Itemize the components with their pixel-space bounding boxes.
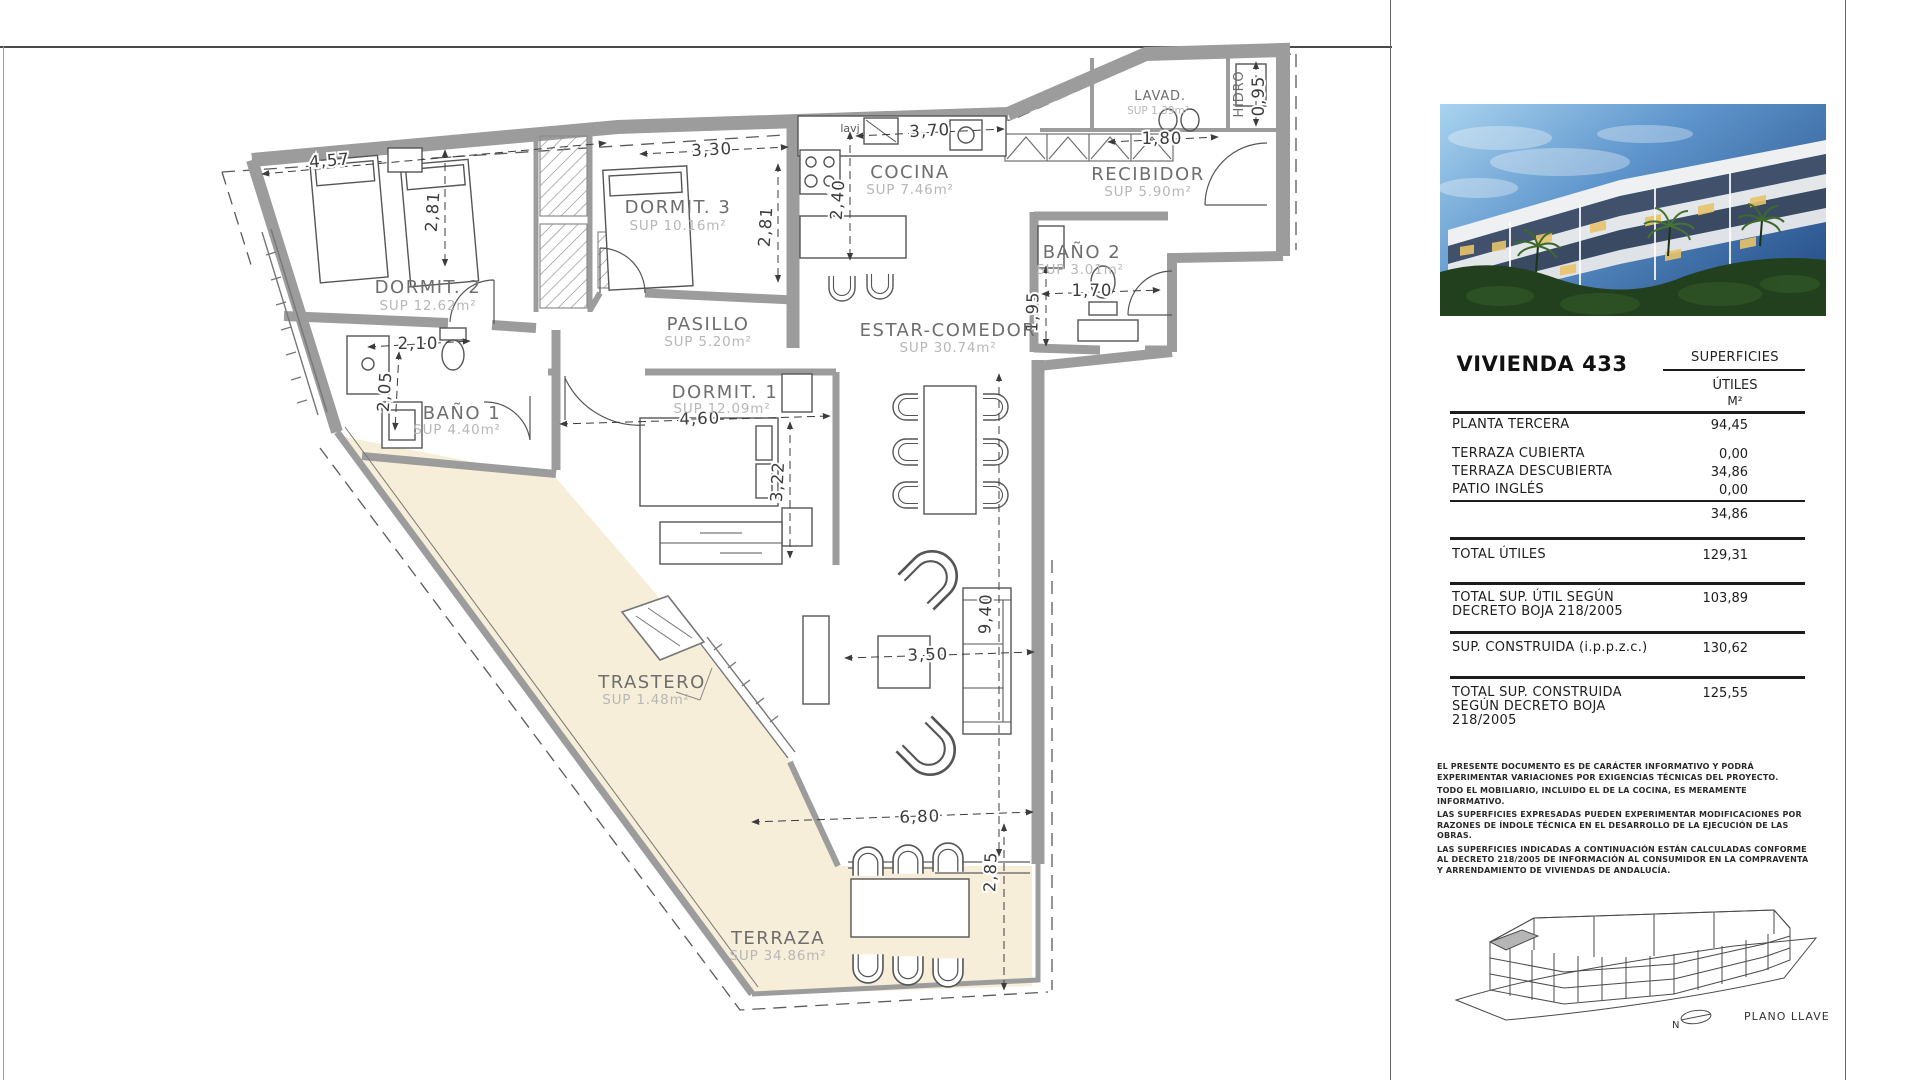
dining-chair xyxy=(893,439,918,465)
room-sup: SUP 34.86m² xyxy=(730,948,827,964)
table-rule xyxy=(1450,411,1805,414)
table-row-label: TERRAZA CUBIERTA xyxy=(1452,447,1657,461)
toilet-bath1 xyxy=(442,340,464,370)
nightstand-dormit1-b xyxy=(782,508,812,546)
room-sup: SUP 5.90m² xyxy=(1104,184,1192,200)
dim-label: 3,50 xyxy=(907,644,948,664)
table-row-value: 130,62 xyxy=(1660,641,1748,656)
floor-plan: 4,57 2,81 3,30 2,81 2,40 3,70 1,80 0,95 … xyxy=(0,0,1390,1080)
table-rule xyxy=(1450,676,1805,679)
table-row-value: 34,86 xyxy=(1660,465,1748,480)
room-sup: SUP 1.48m² xyxy=(602,692,690,708)
dim-label: 2,81 xyxy=(755,206,777,248)
dim-label: 3,30 xyxy=(691,139,733,160)
table-row-value: 0,00 xyxy=(1660,447,1748,462)
table-row-value: 125,55 xyxy=(1660,686,1748,701)
dining-table xyxy=(924,386,976,514)
room-sup: SUP 7.46m² xyxy=(866,182,954,198)
room-sup: SUP 3.01m² xyxy=(1036,262,1124,278)
dim-label: 1,70 xyxy=(1072,281,1113,300)
kitchen-island xyxy=(800,216,906,258)
dim-label: 2,40 xyxy=(827,179,849,221)
room-name: HIDRO xyxy=(1232,71,1247,118)
room-sup: SUP 1.39m² xyxy=(1127,105,1189,117)
room-sup: SUP 12.09m² xyxy=(674,401,771,417)
table-rule xyxy=(1450,537,1805,540)
kitchen-sink xyxy=(950,120,982,150)
dim-label: 2,05 xyxy=(374,371,396,413)
dining-chair xyxy=(983,482,1008,508)
table-row-value: 129,31 xyxy=(1660,548,1748,563)
terrace-chair xyxy=(853,954,883,983)
terrace-chair xyxy=(933,958,963,987)
disclaimer-line: LAS SUPERFICIES EXPRESADAS PUEDEN EXPERI… xyxy=(1437,810,1815,842)
room-name: PASILLO xyxy=(667,314,750,335)
armchair xyxy=(898,541,967,610)
table-row-label: TOTAL SUP. ÚTIL SEGÚN DECRETO BOJA 218/2… xyxy=(1452,591,1657,619)
dim-label: 6,80 xyxy=(899,806,940,826)
dining-chair xyxy=(893,394,918,420)
tv-bench xyxy=(803,616,829,704)
disclaimer-line: TODO EL MOBILIARIO, INCLUIDO EL DE LA CO… xyxy=(1437,786,1815,807)
room-name: BAÑO 2 xyxy=(1043,241,1121,263)
key-plan: N PLANO LLAVE xyxy=(1444,880,1834,1050)
dim-label: 2,85 xyxy=(980,851,1000,892)
dim-label: 0,95 xyxy=(1249,76,1268,117)
toilet-tank-bath2 xyxy=(1089,302,1117,315)
table-row-label: PATIO INGLÉS xyxy=(1452,483,1657,497)
room-name: COCINA xyxy=(870,162,949,183)
room-name: BAÑO 1 xyxy=(423,402,501,424)
keyplan-building xyxy=(1490,910,1790,1004)
stool xyxy=(829,276,855,301)
room-name: LAVAD. xyxy=(1134,89,1186,104)
room-sup: SUP 30.74m² xyxy=(900,340,997,356)
disclaimer-line: LAS SUPERFICIES INDICADAS A CONTINUACIÓN… xyxy=(1437,845,1815,877)
dim-label: 4,57 xyxy=(308,149,350,171)
header-underline xyxy=(1663,369,1805,371)
room-sup: SUP 5.20m² xyxy=(664,334,752,350)
table-unit: M² xyxy=(1660,394,1810,408)
toilet-tank-bath1 xyxy=(440,328,466,340)
table-header: SUPERFICIES xyxy=(1660,350,1810,365)
armchair xyxy=(896,716,965,785)
room-name: ESTAR-COMEDOR xyxy=(860,320,1037,341)
dim-label: 2,10 xyxy=(398,334,439,353)
table-row-value: 34,86 xyxy=(1660,507,1748,522)
dim-label: 2,81 xyxy=(422,191,444,233)
terrace-table xyxy=(851,879,969,937)
terrace-chair xyxy=(893,845,923,874)
disclaimer-line: EL PRESENTE DOCUMENTO ES DE CARÁCTER INF… xyxy=(1437,762,1815,783)
dining-chair xyxy=(893,482,918,508)
table-rule xyxy=(1450,631,1805,634)
dim-label: 3,70 xyxy=(909,120,951,141)
room-name: TERRAZA xyxy=(730,928,825,949)
nightstand-dormit2 xyxy=(388,148,422,172)
table-row-label: TOTAL ÚTILES xyxy=(1452,548,1657,562)
disclaimer: EL PRESENTE DOCUMENTO ES DE CARÁCTER INF… xyxy=(1437,762,1815,879)
lavj-label: lavj xyxy=(840,122,859,135)
nightstand-dormit1-a xyxy=(782,374,812,412)
shower-bath2 xyxy=(1078,320,1138,341)
room-name: DORMIT. 1 xyxy=(672,382,779,403)
table-row-label: PLANTA TERCERA xyxy=(1452,418,1657,432)
table-subheader: ÚTILES xyxy=(1660,378,1810,393)
room-name: RECIBIDOR xyxy=(1091,164,1204,185)
room-name: DORMIT. 2 xyxy=(375,277,482,298)
north-label: N xyxy=(1672,1020,1679,1031)
table-row-label: TERRAZA DESCUBIERTA xyxy=(1452,465,1657,479)
table-rule xyxy=(1450,500,1805,502)
drawing-sheet: 4,57 2,81 3,30 2,81 2,40 3,70 1,80 0,95 … xyxy=(0,0,1920,1080)
dim-label: 3,22 xyxy=(767,461,788,503)
dim-label: 1,80 xyxy=(1142,129,1183,148)
terrace-chair xyxy=(933,843,963,872)
keyplan-label: PLANO LLAVE xyxy=(1744,1010,1830,1023)
room-sup: SUP 10.16m² xyxy=(630,218,727,234)
room-sup: SUP 4.40m² xyxy=(413,422,501,438)
dining-chair xyxy=(983,394,1008,420)
north-indicator: N xyxy=(1672,1008,1712,1031)
stool xyxy=(867,274,893,299)
table-rule xyxy=(1450,582,1805,585)
table-row-value: 0,00 xyxy=(1660,483,1748,498)
building-photo xyxy=(1440,104,1826,316)
titleblock-divider-left xyxy=(1390,0,1391,1080)
terrace-chair xyxy=(853,847,883,876)
table-row-value: 103,89 xyxy=(1660,591,1748,606)
room-sup: SUP 12.62m² xyxy=(380,298,477,314)
dim-label: 9,40 xyxy=(975,593,995,634)
table-row-label: SUP. CONSTRUIDA (i.p.p.z.c.) xyxy=(1452,641,1657,655)
table-row-label: TOTAL SUP. CONSTRUIDA SEGÚN DECRETO BOJA… xyxy=(1452,686,1657,728)
table-row-value: 94,45 xyxy=(1660,418,1748,433)
unit-title: VIVIENDA 433 xyxy=(1452,352,1632,376)
room-name: DORMIT. 3 xyxy=(625,197,732,218)
terrace-chair xyxy=(893,956,923,985)
dining-chair xyxy=(983,439,1008,465)
bed-dormit2-a xyxy=(310,155,388,282)
titleblock-divider-right xyxy=(1845,0,1846,1080)
room-name: TRASTERO xyxy=(597,672,706,693)
keyplan-unit-highlight xyxy=(1490,930,1538,950)
